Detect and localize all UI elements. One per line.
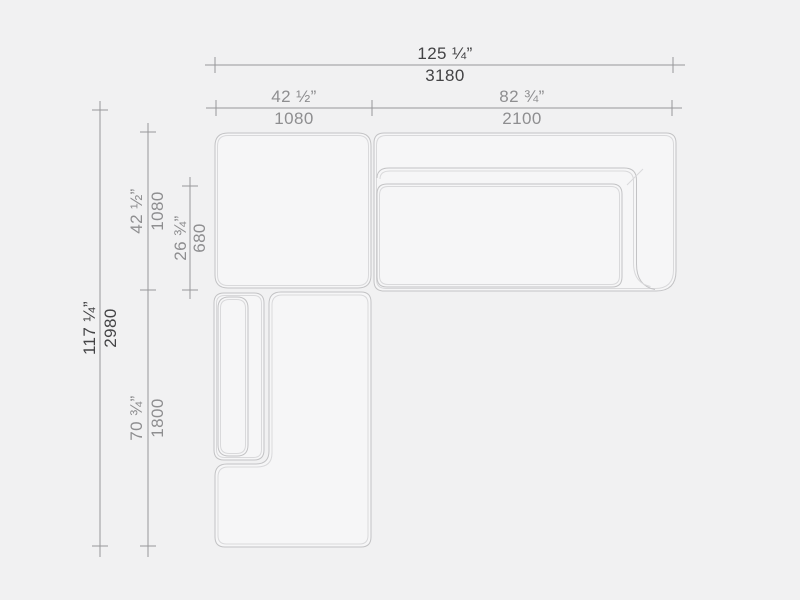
dim-seat-depth-mm: 680 [190, 223, 210, 253]
sofa-plan-drawing [0, 0, 800, 600]
dim-corner-depth-inches: 42 ½” [127, 188, 147, 233]
sofa-right-module [374, 133, 676, 291]
sofa-dimension-drawing-canvas: 125 ¼” 3180 42 ½” 1080 82 ¾” 2100 117 ¼”… [0, 0, 800, 600]
dim-corner-width-mm: 1080 [274, 109, 313, 129]
sofa-bottom-module [214, 292, 371, 547]
sofa-corner-module [215, 133, 371, 288]
bottom-arm-cushion [218, 297, 248, 456]
dim-overall-depth-mm: 2980 [101, 308, 121, 347]
dim-seat-depth-inches: 26 ¾” [171, 215, 191, 260]
dim-bottom-depth-inches: 70 ¾” [127, 395, 147, 440]
dim-bottom-depth-mm: 1800 [148, 398, 168, 437]
dim-overall-depth-inches: 117 ¼” [80, 301, 100, 355]
dim-chaise-width-inches: 82 ¾” [499, 87, 544, 107]
dim-overall-width-mm: 3180 [425, 66, 464, 86]
corner-module-outline [215, 133, 371, 288]
dim-corner-width-inches: 42 ½” [271, 87, 316, 107]
dim-chaise-width-mm: 2100 [502, 109, 541, 129]
dim-corner-depth-mm: 1080 [148, 191, 168, 230]
dim-overall-width-inches: 125 ¼” [417, 44, 472, 64]
right-seat-cushion [377, 184, 622, 287]
